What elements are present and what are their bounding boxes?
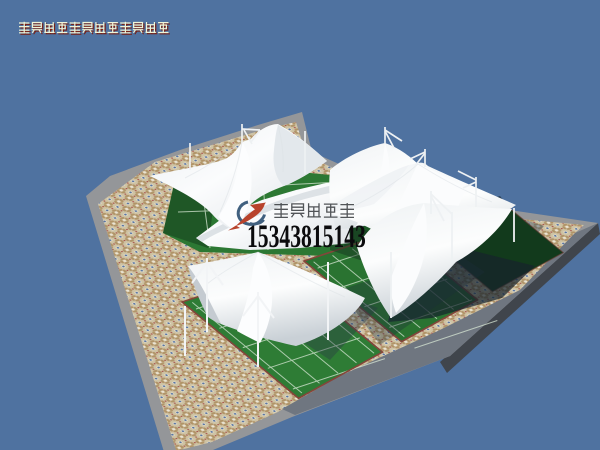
svg-text:15343815143: 15343815143	[247, 219, 366, 256]
